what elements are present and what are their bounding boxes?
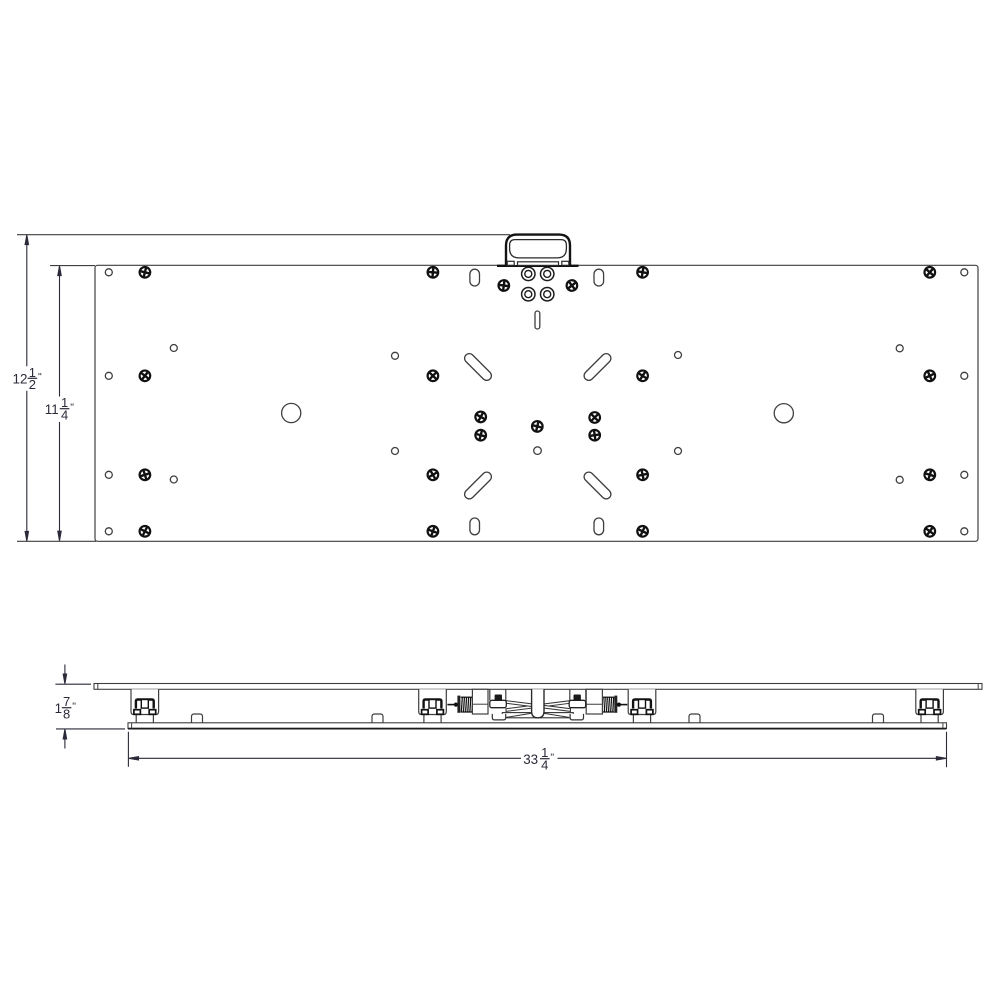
svg-text:33: 33 bbox=[523, 752, 538, 767]
svg-text:": " bbox=[72, 701, 76, 713]
svg-text:4: 4 bbox=[541, 757, 548, 772]
svg-text:4: 4 bbox=[61, 407, 68, 422]
svg-text:11: 11 bbox=[45, 402, 59, 417]
svg-text:12: 12 bbox=[13, 372, 28, 387]
svg-text:": " bbox=[550, 752, 554, 764]
svg-text:1: 1 bbox=[55, 701, 62, 716]
svg-text:8: 8 bbox=[63, 706, 70, 721]
svg-text:": " bbox=[38, 371, 42, 383]
svg-text:": " bbox=[70, 402, 74, 414]
svg-text:2: 2 bbox=[29, 377, 36, 392]
